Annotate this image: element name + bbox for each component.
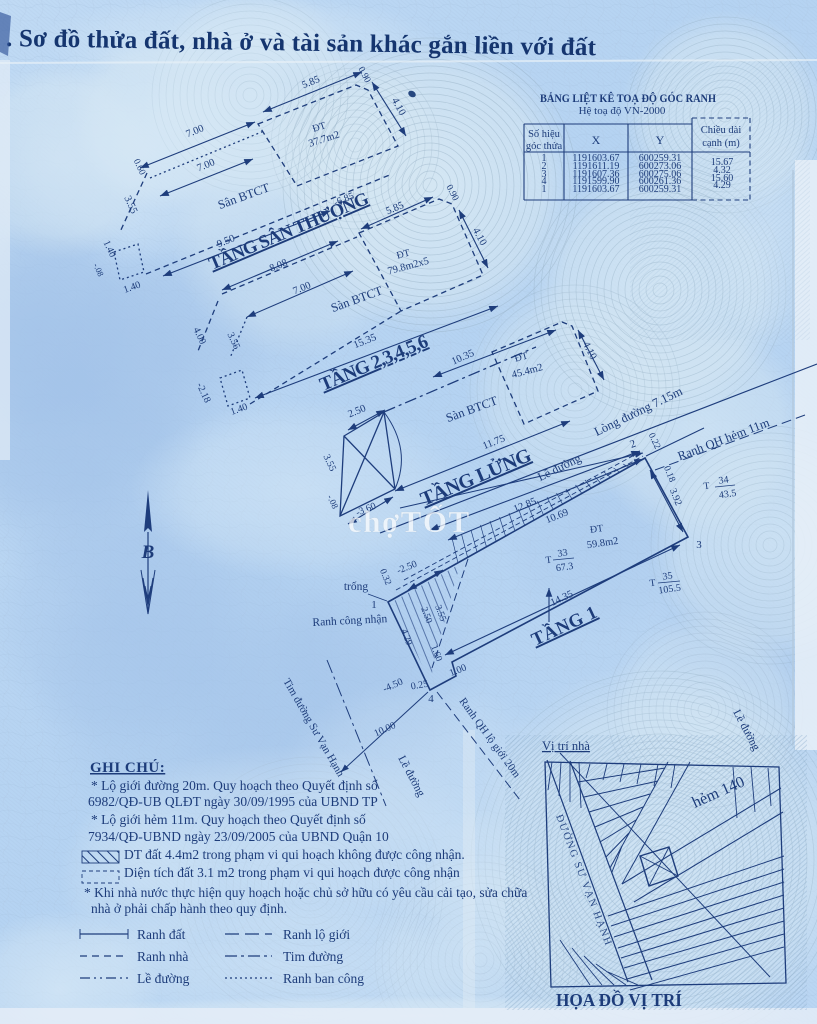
- svg-text:7934/QĐ-UBND ngày 23/09/2005 c: 7934/QĐ-UBND ngày 23/09/2005 của UBND Qu…: [88, 829, 389, 844]
- svg-text:33: 33: [557, 547, 568, 559]
- svg-text:Diện tích đất 3.1 m2 trong ph: Diện tích đất 3.1 m2 trong phạm vi qui h…: [124, 865, 460, 880]
- svg-text:Vị trí nhà: Vị trí nhà: [542, 739, 590, 753]
- svg-text:HỌA ĐỒ VỊ TRÍ: HỌA ĐỒ VỊ TRÍ: [556, 989, 682, 1010]
- svg-text:Hệ toạ độ VN-2000: Hệ toạ độ VN-2000: [579, 105, 666, 117]
- svg-text:trống: trống: [344, 580, 369, 593]
- svg-text:cạnh (m): cạnh (m): [702, 138, 740, 149]
- svg-text:Y: Y: [656, 133, 665, 147]
- svg-text:góc thửa: góc thửa: [526, 141, 563, 152]
- svg-text:4: 4: [428, 693, 434, 705]
- svg-text:1: 1: [542, 184, 547, 195]
- svg-text:GHI CHÚ:: GHI CHÚ:: [90, 759, 165, 776]
- svg-text:* Lộ giới đường 20m. Quy hoạ: * Lộ giới đường 20m. Quy hoạch theo Quyế…: [91, 778, 378, 793]
- svg-text:X: X: [592, 133, 601, 147]
- svg-text:4.29: 4.29: [713, 180, 731, 191]
- svg-text:Ranh ban công: Ranh ban công: [283, 971, 364, 986]
- svg-text:1: 1: [371, 599, 377, 611]
- svg-text:1191603.67: 1191603.67: [572, 184, 619, 195]
- svg-text:B: B: [141, 542, 155, 563]
- svg-text:Lề đường: Lề đường: [137, 971, 190, 986]
- svg-text:ĐT: ĐT: [589, 523, 604, 536]
- svg-text:34: 34: [718, 474, 729, 486]
- svg-text:chợTỐT: chợTỐT: [348, 503, 471, 539]
- svg-text:DT đất 4.4m2 trong phạm vi q: DT đất 4.4m2 trong phạm vi qui hoạch khô…: [124, 847, 465, 862]
- svg-text:600259.31: 600259.31: [639, 184, 682, 195]
- svg-text:6982/QĐ-UB QLĐT ngày 30/09/: 6982/QĐ-UB QLĐT ngày 30/09/1995 của UBND…: [88, 794, 378, 809]
- svg-text:* Lộ giới hẻm 11m. Quy hoạch: * Lộ giới hẻm 11m. Quy hoạch theo Quyết …: [91, 812, 366, 827]
- svg-text:Tim đường: Tim đường: [283, 949, 343, 964]
- svg-text:BẢNG LIỆT KÊ TOẠ ĐỘ GÓC RANH: BẢNG LIỆT KÊ TOẠ ĐỘ GÓC RANH: [540, 91, 717, 105]
- svg-text:3: 3: [696, 539, 702, 551]
- svg-text:Chiều dài: Chiều dài: [701, 125, 742, 136]
- svg-text:* Khi nhà nước thực hiện quy h: * Khi nhà nước thực hiện quy hoạch hoặc …: [84, 885, 527, 900]
- svg-text:Ranh đất: Ranh đất: [137, 927, 186, 942]
- svg-text:Ranh nhà: Ranh nhà: [137, 949, 188, 964]
- svg-text:35: 35: [662, 570, 673, 582]
- svg-text:Ranh lộ giới: Ranh lộ giới: [283, 927, 350, 942]
- svg-text:nhà ở phải chấp hành theo quy: nhà ở phải chấp hành theo quy định.: [91, 901, 287, 916]
- svg-text:Số hiệu: Số hiệu: [528, 129, 561, 140]
